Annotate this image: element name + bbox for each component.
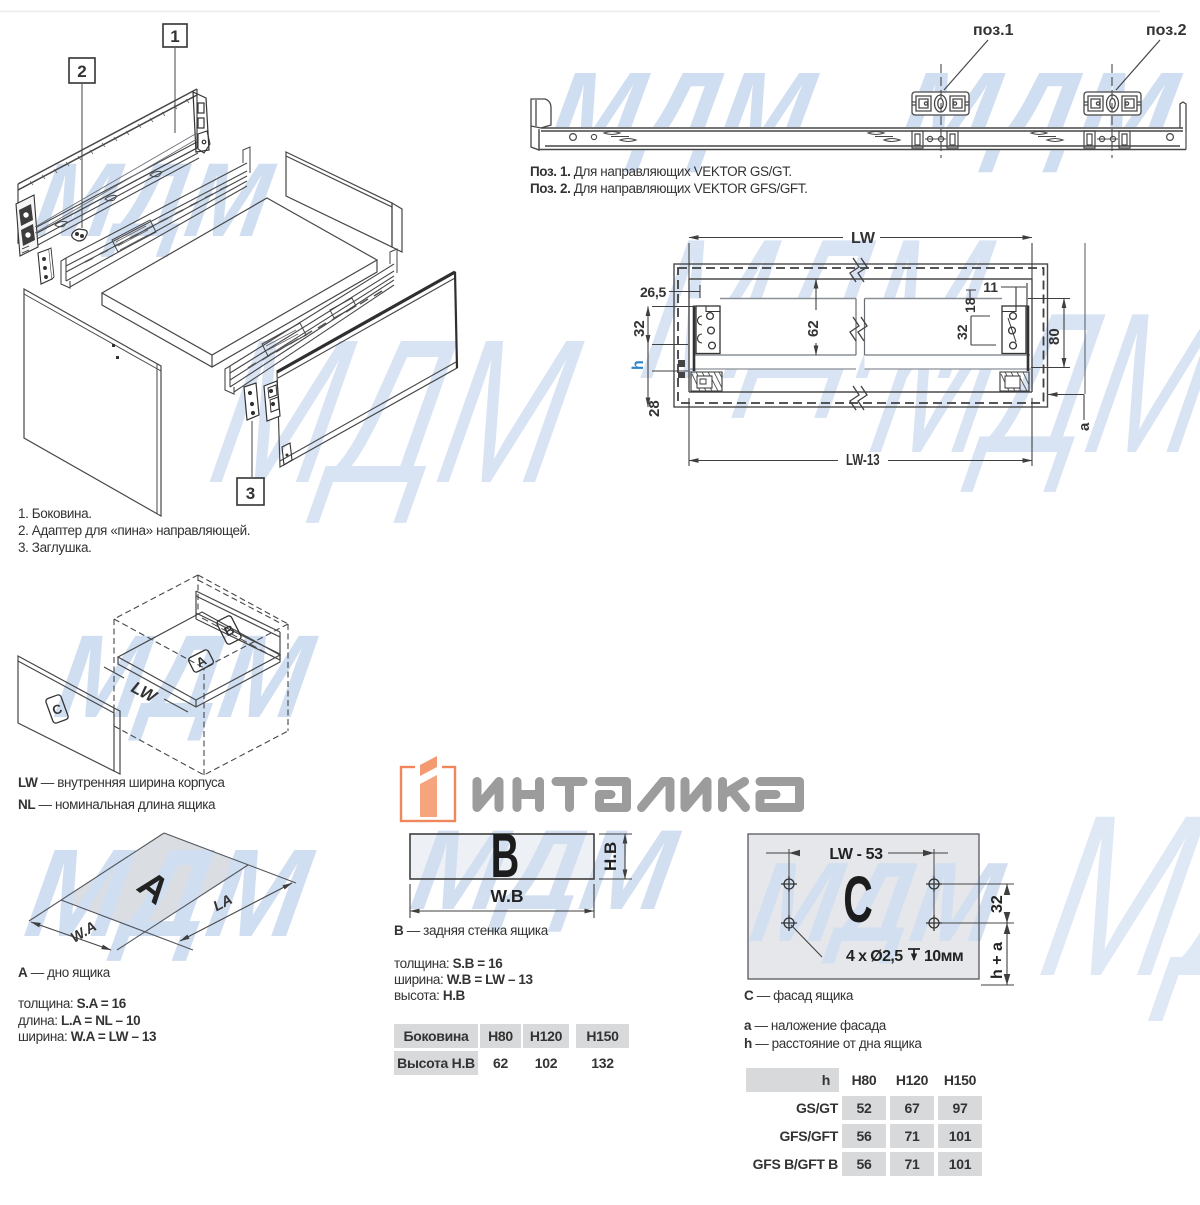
svg-text:ширина: W.A = LW – 13: ширина: W.A = LW – 13 — [18, 1029, 157, 1044]
svg-text:A — дно ящика: A — дно ящика — [18, 965, 111, 980]
svg-text:1: 1 — [170, 27, 179, 46]
svg-text:C: C — [843, 862, 873, 937]
svg-text:H150: H150 — [944, 1072, 977, 1088]
svg-text:h + a: h + a — [989, 942, 1006, 979]
svg-text:h — расстояние от дна ящика: h — расстояние от дна ящика — [744, 1036, 922, 1051]
svg-text:GFS/GFT: GFS/GFT — [779, 1128, 838, 1144]
svg-text:56: 56 — [857, 1156, 872, 1172]
svg-text:71: 71 — [905, 1156, 920, 1172]
svg-text:МДМ: МДМ — [48, 610, 324, 742]
svg-text:62: 62 — [805, 320, 822, 337]
svg-text:Высота H.B: Высота H.B — [397, 1055, 475, 1071]
svg-text:H150: H150 — [586, 1028, 619, 1044]
svg-text:LW - 53: LW - 53 — [829, 846, 883, 863]
svg-text:высота: H.B: высота: H.B — [394, 988, 466, 1003]
svg-text:толщина: S.A = 16: толщина: S.A = 16 — [18, 996, 127, 1011]
svg-text:56: 56 — [857, 1128, 872, 1144]
svg-text:МДМ: МДМ — [17, 823, 322, 963]
svg-text:поз.1: поз.1 — [973, 22, 1014, 39]
svg-text:Боковина: Боковина — [403, 1028, 469, 1044]
svg-text:2: 2 — [77, 62, 86, 81]
svg-text:62: 62 — [493, 1055, 508, 1071]
svg-text:C — фасад ящика: C — фасад ящика — [744, 988, 854, 1003]
svg-text:h: h — [630, 360, 647, 370]
svg-text:101: 101 — [949, 1128, 972, 1144]
svg-text:LW: LW — [851, 230, 876, 247]
svg-text:32: 32 — [631, 320, 648, 337]
svg-text:GS/GT: GS/GT — [796, 1100, 839, 1116]
svg-text:52: 52 — [857, 1100, 872, 1116]
svg-text:Поз. 1. Для направляющих VEKTO: Поз. 1. Для направляющих VEKTOR GS/GT. — [530, 164, 792, 179]
svg-text:102: 102 — [535, 1055, 558, 1071]
svg-text:71: 71 — [905, 1128, 920, 1144]
svg-text:B: B — [491, 822, 520, 891]
svg-text:26,5: 26,5 — [640, 284, 667, 300]
svg-text:NL — номинальная длина ящика: NL — номинальная длина ящика — [18, 797, 216, 812]
svg-text:132: 132 — [591, 1055, 614, 1071]
svg-text:101: 101 — [949, 1156, 972, 1172]
svg-text:28: 28 — [646, 400, 663, 417]
svg-text:a — наложение фасада: a — наложение фасада — [744, 1018, 887, 1033]
svg-text:a: a — [1076, 422, 1093, 431]
svg-text:МДМ: МДМ — [404, 806, 688, 933]
svg-text:97: 97 — [953, 1100, 968, 1116]
svg-text:толщина: S.B = 16: толщина: S.B = 16 — [394, 956, 503, 971]
svg-text:W.B: W.B — [490, 886, 523, 906]
svg-text:67: 67 — [905, 1100, 920, 1116]
svg-text:H80: H80 — [488, 1028, 513, 1044]
svg-text:11: 11 — [983, 279, 998, 295]
svg-text:10мм: 10мм — [924, 948, 963, 965]
svg-text:поз.2: поз.2 — [1146, 22, 1187, 39]
svg-text:H120: H120 — [530, 1028, 563, 1044]
svg-text:LW-13: LW-13 — [846, 450, 880, 468]
svg-text:3. Заглушка.: 3. Заглушка. — [18, 540, 91, 555]
svg-text:длина: L.A = NL – 10: длина: L.A = NL – 10 — [18, 1013, 140, 1028]
svg-text:2. Адаптер для «пина» направля: 2. Адаптер для «пина» направляющей. — [18, 523, 250, 538]
svg-text:80: 80 — [1046, 328, 1063, 345]
svg-text:ширина: W.B = LW – 13: ширина: W.B = LW – 13 — [394, 972, 534, 987]
svg-text:4 x Ø2,5: 4 x Ø2,5 — [846, 948, 903, 965]
svg-text:h: h — [822, 1072, 830, 1088]
svg-text:1. Боковина.: 1. Боковина. — [18, 506, 92, 521]
svg-text:32: 32 — [954, 324, 970, 340]
svg-text:3: 3 — [246, 484, 255, 503]
svg-text:LW — внутренняя ширина корпуса: LW — внутренняя ширина корпуса — [18, 775, 225, 790]
svg-text:H80: H80 — [852, 1072, 877, 1088]
svg-text:GFS B/GFT B: GFS B/GFT B — [753, 1156, 839, 1172]
svg-text:B — задняя стенка ящика: B — задняя стенка ящика — [394, 923, 549, 938]
svg-text:H.B: H.B — [601, 842, 620, 871]
svg-text:32: 32 — [989, 895, 1006, 913]
svg-text:18: 18 — [962, 297, 978, 313]
svg-text:H120: H120 — [896, 1072, 929, 1088]
svg-text:Поз. 2. Для направляющих VEKTO: Поз. 2. Для направляющих VEKTOR GFS/GFT. — [530, 181, 807, 196]
svg-text:МДМ: МДМ — [541, 48, 825, 174]
